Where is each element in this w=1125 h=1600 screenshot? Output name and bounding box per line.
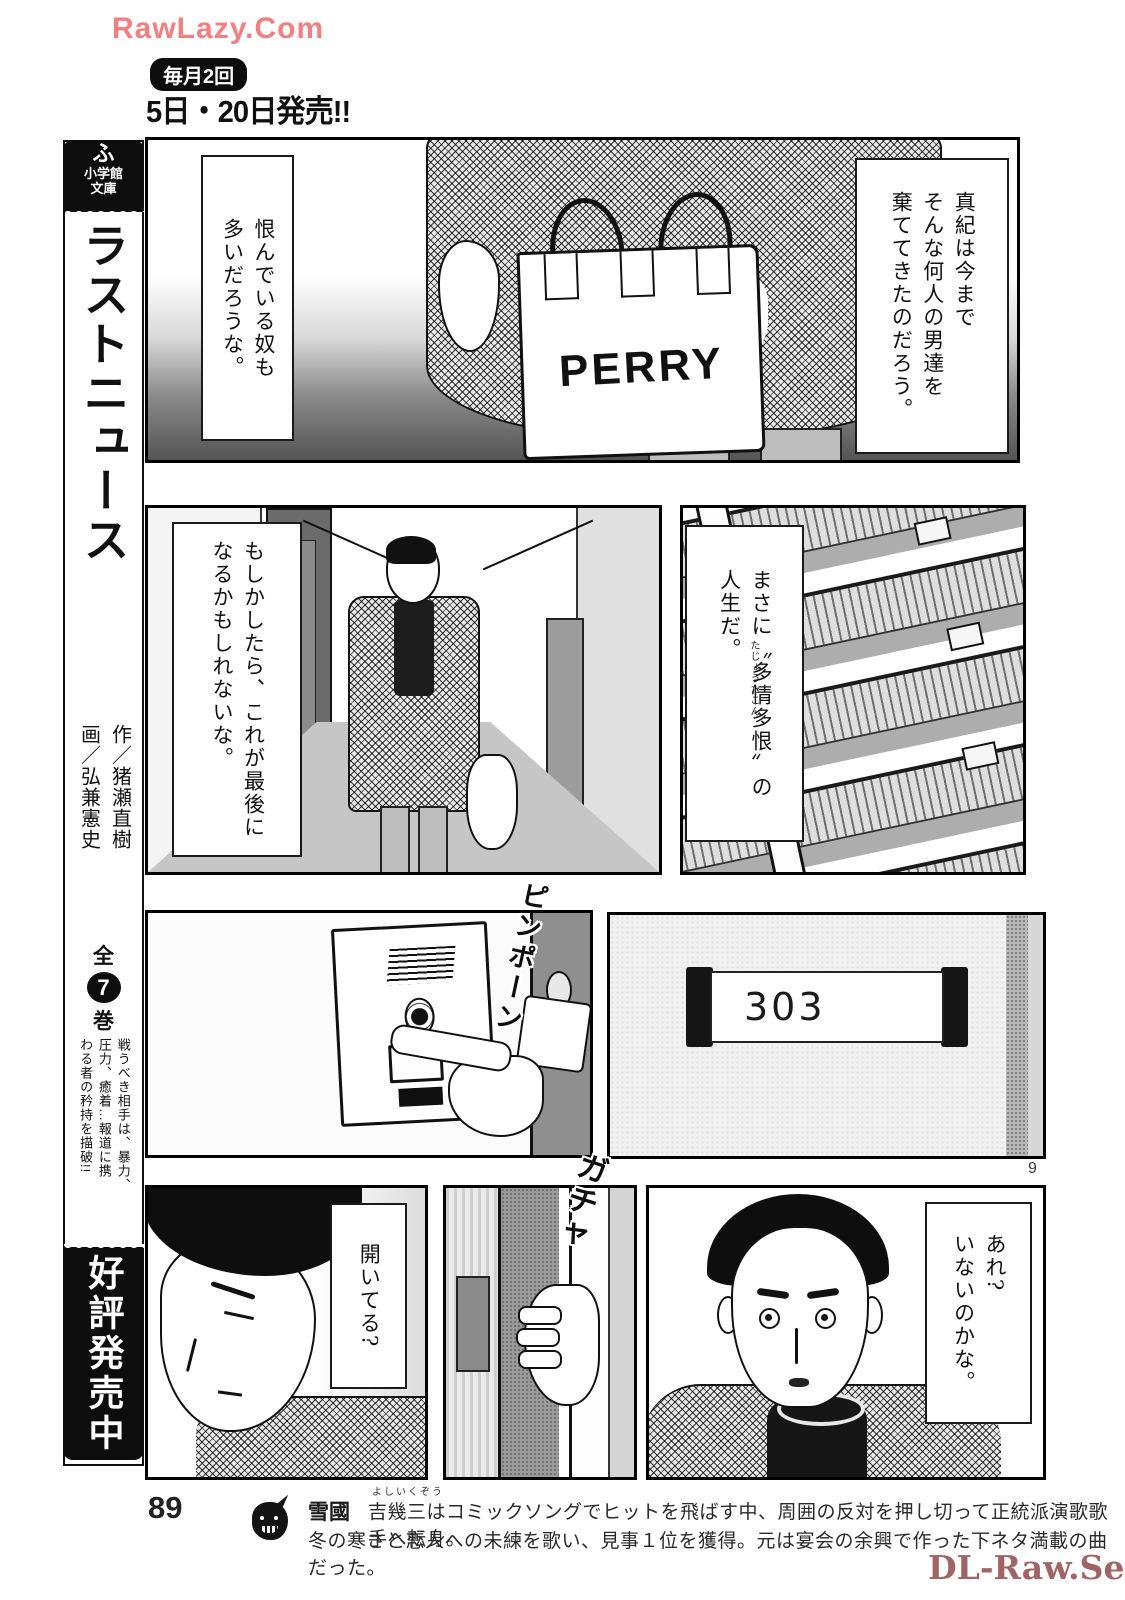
- volumes-count-badge: 7: [87, 972, 121, 1003]
- panel-5-room-number: 303: [607, 912, 1046, 1159]
- bag-tab-art: [544, 253, 580, 300]
- eyebrow-art: [757, 1288, 790, 1299]
- bag-brand-label: PERRY: [522, 337, 760, 399]
- narration-box: もしかしたら、これが最後に なるかもしれないな。: [172, 522, 302, 857]
- room-number: 303: [744, 985, 826, 1029]
- plate-center: 303: [710, 971, 944, 1043]
- footer-page-number: 89: [148, 1490, 182, 1526]
- tagline-text: 戦うべき相手は、暴力、 圧力、癒着…報道に携 わる者の矜持を描破!!: [75, 1038, 132, 1192]
- man-leg-art: [418, 806, 448, 875]
- wall-edge-art: [1028, 915, 1043, 1156]
- bag-tab-art: [695, 248, 731, 295]
- narration-box: まさに〝多情多恨〟の 人生だ。: [685, 525, 804, 842]
- speech-text: あれ? いないのかな。: [947, 1233, 1010, 1394]
- scallop-edge: [63, 1244, 144, 1251]
- man-sweater-art: [394, 600, 434, 696]
- finger-art: [516, 1328, 560, 1347]
- furigana-text: たじょうたこん: [746, 640, 761, 717]
- scallop-edge: [63, 208, 144, 212]
- bag-tab-art: [619, 251, 655, 298]
- series-title-block: ラストニュース: [65, 222, 142, 727]
- latch-plate-art: [456, 1276, 490, 1372]
- manga-page: RawLazy.Com 毎月2回 5日・20日発売!! ふ 小学館 文庫 ラスト…: [0, 0, 1125, 1600]
- narration-text: まさに〝多情多恨〟の 人生だ。: [713, 569, 776, 799]
- perry-shopping-bag: PERRY: [516, 244, 765, 460]
- series-title: ラストニュース: [81, 222, 127, 565]
- mascot-body-art: [252, 1502, 288, 1540]
- speaker-grille-art: [386, 946, 455, 986]
- speech-text: 開いてる?: [353, 1243, 385, 1348]
- mouth-art: [789, 1378, 809, 1387]
- trivia-song-title: 雪國: [308, 1496, 350, 1526]
- narration-text: もしかしたら、これが最後に なるかもしれないな。: [206, 540, 269, 839]
- nose-art: [186, 1338, 197, 1372]
- narration-text: 恨んでいる奴も 多いだろうな。: [216, 218, 279, 379]
- furigana-text: よしいくぞう: [372, 1483, 444, 1498]
- room-number-plate: 303: [686, 967, 968, 1047]
- mascot-icon: [252, 1494, 294, 1542]
- name-plate-art: [398, 1087, 443, 1107]
- narration-box: 真紀は今まで そんな何人の男達を 棄ててきたのだろう。: [855, 158, 1009, 454]
- plate-cap-art: [686, 967, 713, 1047]
- man-leg-art: [380, 806, 410, 875]
- speech-box: 開いてる?: [330, 1203, 407, 1389]
- speech-box: あれ? いないのかな。: [925, 1202, 1032, 1424]
- publisher-name: 小学館 文庫: [80, 166, 128, 196]
- eyebrow-art: [210, 1281, 255, 1300]
- narration-box: 恨んでいる奴も 多いだろうな。: [201, 155, 294, 441]
- eye-art: [815, 1308, 836, 1329]
- man-head-art: [386, 538, 440, 604]
- eyebrow-art: [807, 1288, 840, 1299]
- white-bag-art: [466, 754, 518, 850]
- eye-art: [224, 1311, 254, 1320]
- author-artist-credits: 作／猪瀬直樹 画／弘兼憲史: [73, 724, 135, 850]
- mouth-art: [218, 1390, 242, 1396]
- mascot-eye-art: [260, 1516, 264, 1520]
- nose-art: [795, 1328, 798, 1364]
- face-art: [731, 1226, 869, 1408]
- site-watermark-bottom: DL-Raw.Se: [928, 1548, 1125, 1587]
- printed-page-number: 9: [1028, 1160, 1037, 1178]
- finger-art: [518, 1350, 562, 1369]
- volumes-prefix: 全: [93, 940, 114, 970]
- wall-art: [610, 1188, 634, 1477]
- credits-block: 作／猪瀬直樹 画／弘兼憲史: [65, 712, 142, 862]
- wall-edge-art: [1006, 915, 1028, 1156]
- release-dates: 5日・20日発売!!: [146, 86, 350, 131]
- availability-text: 好評発売中: [86, 1254, 122, 1454]
- site-watermark-top: RawLazy.Com: [112, 12, 324, 46]
- plate-cap-art: [941, 967, 968, 1047]
- publisher-logo-icon: ふ: [63, 142, 144, 166]
- publisher-badge: ふ 小学館 文庫: [63, 140, 144, 212]
- mascot-eye-art: [274, 1516, 278, 1520]
- availability-badge: 好評発売中: [63, 1247, 144, 1460]
- sidebar-book-ad: ふ 小学館 文庫 ラストニュース 作／猪瀬直樹 画／弘兼憲史 全 7 巻 戦うべ…: [63, 140, 144, 1466]
- volumes-block: 全 7 巻: [65, 940, 142, 1035]
- man-hair-art: [386, 536, 436, 564]
- narration-text: 真紀は今まで そんな何人の男達を 棄ててきたのだろう。: [885, 191, 980, 421]
- trouser-leg-art: [760, 428, 842, 462]
- volumes-suffix: 巻: [93, 1005, 114, 1035]
- tagline-block: 戦うべき相手は、暴力、 圧力、癒着…報道に携 わる者の矜持を描破!!: [65, 1038, 142, 1243]
- panel-7-door-opening: [443, 1185, 637, 1480]
- eye-art: [759, 1308, 780, 1329]
